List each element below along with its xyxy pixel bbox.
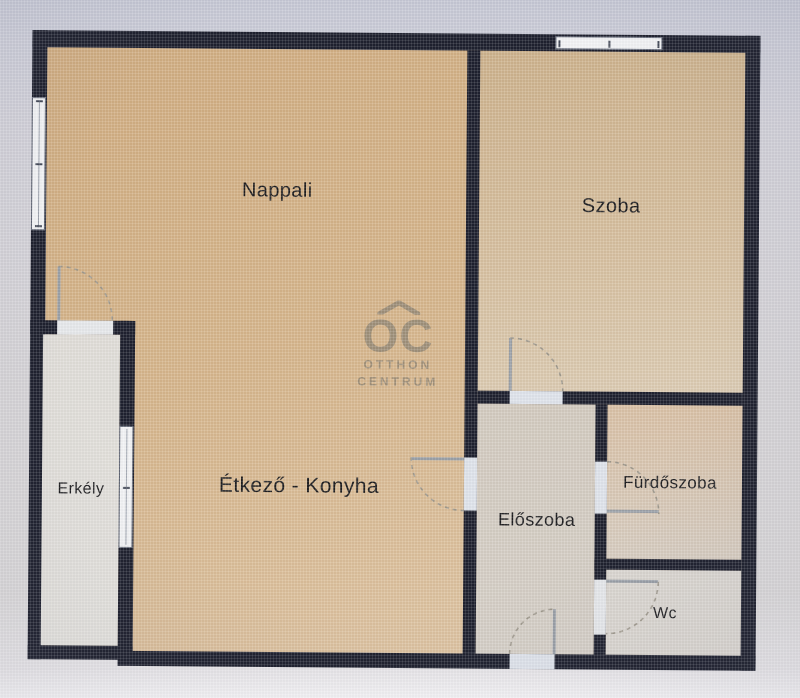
- wall-balcony-bottom: [28, 645, 133, 660]
- floorplan: OC OTTHON CENTRUM: [28, 30, 761, 671]
- door-leaf-wc: [606, 580, 658, 583]
- room-label-etkezo-konyha: Étkező - Konyha: [219, 474, 379, 499]
- door-opening-wc: [594, 580, 606, 635]
- wall-balcony-left: [28, 320, 44, 659]
- window-balcony: [118, 426, 133, 548]
- door-opening-eloszoba: [464, 458, 477, 511]
- door-opening-balcony: [57, 320, 113, 334]
- door-leaf-szoba: [509, 338, 512, 391]
- door-opening-szoba: [510, 391, 563, 404]
- door-leaf-furdoszoba: [607, 510, 659, 513]
- room-label-furdoszoba: Fürdőszoba: [623, 473, 717, 494]
- room-label-eloszoba: Előszoba: [498, 509, 575, 531]
- room-label-szoba: Szoba: [582, 195, 641, 218]
- door-opening-furdoszoba: [595, 462, 607, 514]
- door-leaf-entry: [553, 609, 556, 654]
- room-label-nappali: Nappali: [242, 179, 313, 203]
- window-top: [555, 36, 662, 50]
- window-left: [31, 97, 46, 230]
- room-label-wc: Wc: [653, 605, 677, 623]
- floorplan-photo: OC OTTHON CENTRUM: [0, 0, 800, 698]
- door-opening-entry: [510, 654, 555, 669]
- floor-szoba: [478, 51, 746, 393]
- wall-furdo-wc-divider: [594, 559, 741, 571]
- door-leaf-balcony: [57, 266, 60, 320]
- door-leaf-eloszoba: [411, 457, 464, 460]
- room-label-erkely: Erkély: [57, 480, 104, 498]
